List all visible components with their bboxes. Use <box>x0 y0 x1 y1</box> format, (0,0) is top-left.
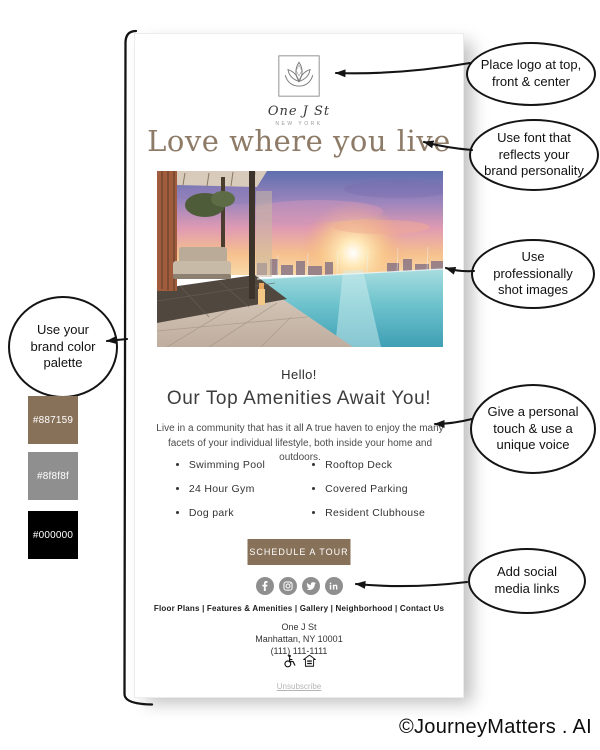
callout-social: Add social media links <box>468 548 586 614</box>
amenity-item: Dog park <box>189 507 265 519</box>
linkedin-icon[interactable] <box>325 577 343 595</box>
brand-name: One J St <box>135 104 463 119</box>
amenities-heading: Our Top Amenities Await You! <box>135 388 463 410</box>
callout-images: Use professionally shot images <box>471 239 595 309</box>
amenity-item: Swimming Pool <box>189 459 265 471</box>
lotus-logo-icon <box>277 54 321 98</box>
amenity-item: Rooftop Deck <box>325 459 425 471</box>
email-headline: Love where you live <box>135 124 463 158</box>
amenities-list: Swimming Pool 24 Hour Gym Dog park Rooft… <box>135 459 463 531</box>
legal-icons <box>135 654 463 668</box>
brand-logo: One J St NEW YORK <box>135 54 463 127</box>
brand-color-swatch: #000000 <box>28 511 78 559</box>
brand-color-swatch: #887159 <box>28 396 78 444</box>
email-template-card: One J St NEW YORK Love where you live <box>134 33 464 698</box>
amenities-column-left: Swimming Pool 24 Hour Gym Dog park <box>189 459 265 531</box>
address-block: One J St Manhattan, NY 10001 (111) 111-1… <box>135 621 463 657</box>
schedule-tour-button[interactable]: SCHEDULE A TOUR <box>248 539 351 565</box>
hero-image-rooftop-pool <box>157 171 443 347</box>
address-line1: One J St <box>135 621 463 633</box>
brand-color-swatch: #8f8f8f <box>28 452 78 500</box>
amenity-item: Resident Clubhouse <box>325 507 425 519</box>
social-links <box>135 577 463 595</box>
greeting-text: Hello! <box>135 367 463 382</box>
callout-font: Use font that reflects your brand person… <box>469 119 599 191</box>
amenities-column-right: Rooftop Deck Covered Parking Resident Cl… <box>325 459 425 531</box>
unsubscribe-link[interactable]: Unsubscribe <box>277 682 321 691</box>
equal-housing-icon <box>302 654 317 668</box>
journeymatters-watermark: ©JourneyMatters . AI <box>399 716 592 739</box>
facebook-icon[interactable] <box>256 577 274 595</box>
twitter-icon[interactable] <box>302 577 320 595</box>
address-line2: Manhattan, NY 10001 <box>135 633 463 645</box>
callout-logo: Place logo at top, front & center <box>466 42 596 106</box>
accessibility-icon <box>282 654 296 668</box>
instagram-icon[interactable] <box>279 577 297 595</box>
amenity-item: 24 Hour Gym <box>189 483 265 495</box>
footer-nav-links[interactable]: Floor Plans | Features & Amenities | Gal… <box>135 604 463 613</box>
callout-voice: Give a personal touch & use a unique voi… <box>470 384 596 474</box>
callout-palette: Use your brand color palette <box>8 296 118 398</box>
amenity-item: Covered Parking <box>325 483 425 495</box>
